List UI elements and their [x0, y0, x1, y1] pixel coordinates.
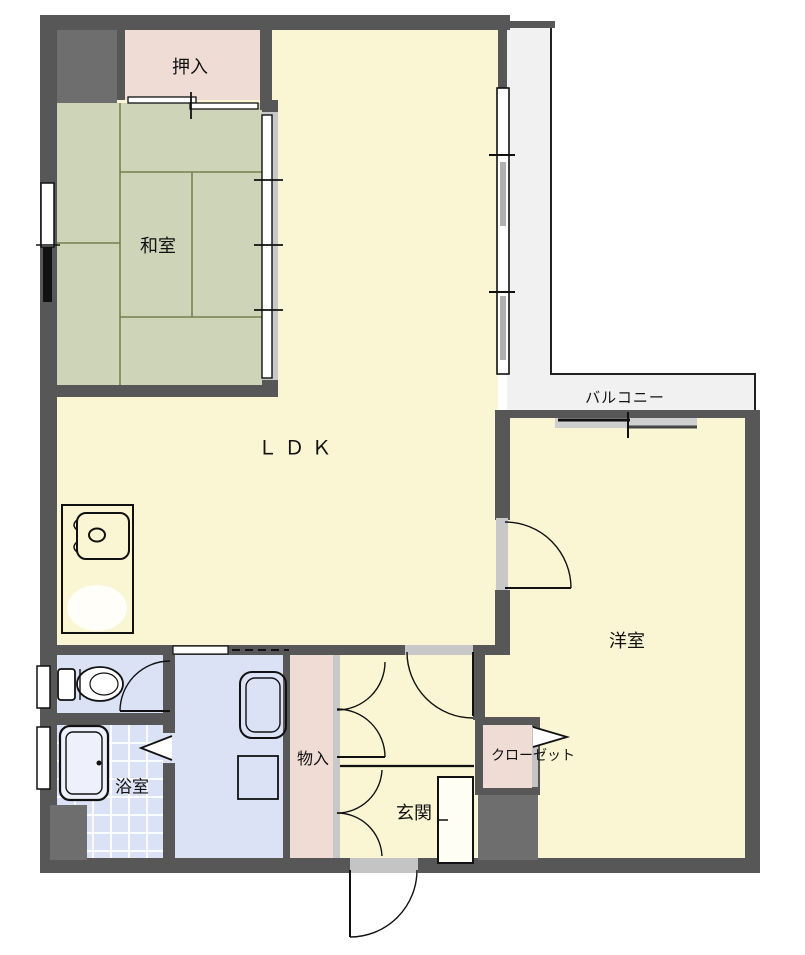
pillar-top-left	[57, 30, 117, 103]
wall-hall-right	[473, 645, 485, 720]
wall-oshiire-right	[260, 30, 272, 110]
washitsu-fusuma	[262, 115, 272, 378]
oshiire-fusuma-2	[190, 103, 258, 109]
washitsu-window	[41, 183, 54, 247]
washitsu-window-panel	[43, 247, 52, 302]
balcony-floor-vertical	[507, 28, 551, 378]
ldk-window-slider-1	[500, 162, 506, 226]
washroom-sliding-door	[173, 646, 228, 654]
balcony	[507, 28, 755, 418]
floorplan-canvas: 押入 和室 ＬＤＫ バルコニー 洋室 浴室 物入 玄関 クローゼット	[0, 0, 805, 955]
shoe-cabinet	[438, 777, 473, 863]
oshiire-fusuma-1	[128, 97, 196, 103]
bath-window	[37, 727, 50, 789]
pillar-bottom-left	[50, 805, 87, 860]
counter-highlight	[67, 585, 127, 631]
label-storage: 物入	[297, 745, 329, 769]
label-washitsu: 和室	[140, 232, 176, 258]
wall-washitsu-bottom	[40, 385, 278, 397]
hall-door-opening	[405, 645, 473, 655]
wall-oshiire-left	[117, 30, 125, 100]
wall-ldk-balcony-stub	[498, 28, 507, 90]
wall-toilet-bath	[57, 713, 163, 725]
room-fills	[57, 30, 745, 858]
label-balcony: バルコニー	[585, 387, 665, 408]
label-genkan: 玄関	[396, 799, 432, 825]
wall-balcony-top	[505, 21, 555, 28]
front-door	[350, 870, 417, 937]
label-oshiire: 押入	[172, 53, 208, 79]
label-closet: クローゼット	[491, 745, 575, 765]
toilet-fixture	[58, 667, 123, 701]
label-yoshitsu: 洋室	[609, 627, 645, 653]
wall-ldk-yoshitsu-lower	[495, 590, 510, 655]
wall-ldk-yoshitsu-upper	[495, 418, 510, 520]
bathtub	[60, 726, 108, 800]
wall-right	[745, 410, 760, 873]
label-bathroom: 浴室	[115, 773, 149, 798]
wall-toilet-right	[163, 655, 175, 713]
toilet-window	[37, 666, 50, 708]
pillar-below-closet	[478, 795, 538, 860]
balcony-railing	[551, 28, 755, 414]
entrance-porch	[350, 858, 418, 873]
ldk-window-slider-2	[500, 296, 506, 360]
label-ldk: ＬＤＫ	[258, 432, 339, 461]
yoshitsu-door-opening	[496, 518, 508, 590]
wall-top	[40, 15, 510, 30]
